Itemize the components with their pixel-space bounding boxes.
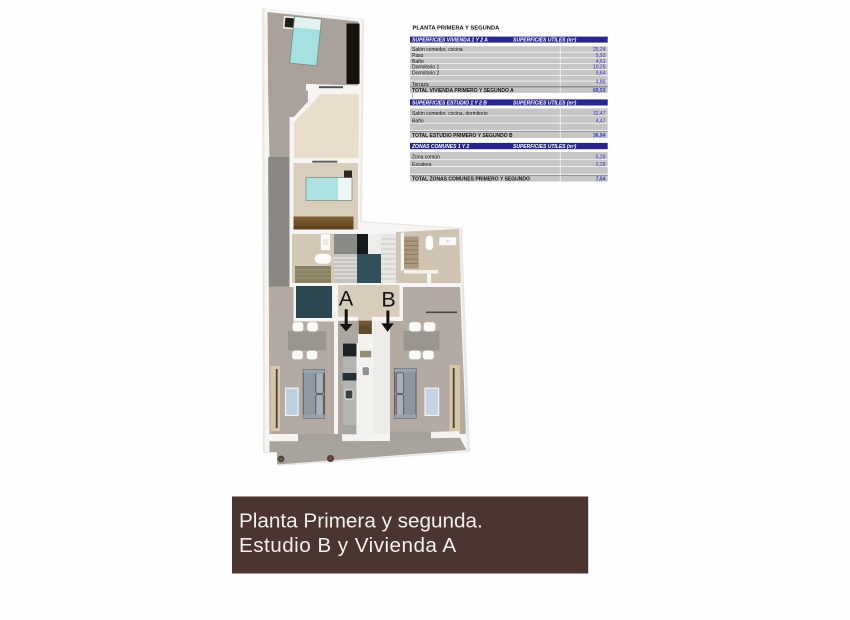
svg-text:9,64: 9,64 — [596, 70, 606, 76]
svg-text:SUPERFICIES UTILES (m²): SUPERFICIES UTILES (m²) — [513, 37, 577, 43]
svg-text:B: B — [381, 288, 395, 312]
svg-text:Estudio B y Vivienda A: Estudio B y Vivienda A — [239, 534, 457, 557]
svg-text:SUPERFICIES ESTUDIO 1 Y 2 B: SUPERFICIES ESTUDIO 1 Y 2 B — [412, 100, 487, 106]
svg-text:Baño: Baño — [412, 118, 424, 124]
svg-text:Zona común: Zona común — [412, 155, 440, 161]
svg-text:PLANTA PRIMERA Y SEGUNDA: PLANTA PRIMERA Y SEGUNDA — [413, 26, 501, 32]
svg-text:TOTAL VIVIENDA PRIMERO Y SEGUN: TOTAL VIVIENDA PRIMERO Y SEGUNDO A — [412, 88, 514, 94]
svg-text:SUPERFICIES UTILES (m²): SUPERFICIES UTILES (m²) — [513, 100, 577, 106]
svg-text:32,47: 32,47 — [593, 111, 606, 117]
svg-text:36,94: 36,94 — [593, 133, 606, 139]
svg-text:Planta Primera y segunda.: Planta Primera y segunda. — [239, 510, 483, 533]
svg-text:Escalera: Escalera — [412, 162, 432, 168]
svg-text:2,28: 2,28 — [596, 162, 606, 168]
svg-text:SUPERFICIES VIVIENDA 1 Y 2 A: SUPERFICIES VIVIENDA 1 Y 2 A — [412, 37, 488, 43]
svg-text:TOTAL ZONAS COMUNES PRIMERO Y: TOTAL ZONAS COMUNES PRIMERO Y SEGUNDO — [412, 177, 530, 183]
svg-text:69,53: 69,53 — [593, 88, 606, 94]
svg-text:Salón comedor, cocina, dormito: Salón comedor, cocina, dormitorio — [412, 111, 488, 117]
svg-text:5,26: 5,26 — [596, 155, 606, 161]
svg-text:4,86: 4,86 — [596, 79, 606, 85]
svg-text:ZONAS COMUNES 1 Y 2: ZONAS COMUNES 1 Y 2 — [411, 144, 470, 150]
svg-text:4,47: 4,47 — [596, 118, 606, 124]
svg-text:A: A — [339, 287, 354, 311]
svg-text:Dormitorio 2: Dormitorio 2 — [412, 70, 439, 76]
svg-text:TOTAL ESTUDIO PRIMERO Y SEGUND: TOTAL ESTUDIO PRIMERO Y SEGUNDO B — [412, 133, 513, 139]
svg-text:SUPERFICIES UTILES (m²): SUPERFICIES UTILES (m²) — [513, 144, 577, 150]
svg-text:7,54: 7,54 — [596, 177, 606, 183]
